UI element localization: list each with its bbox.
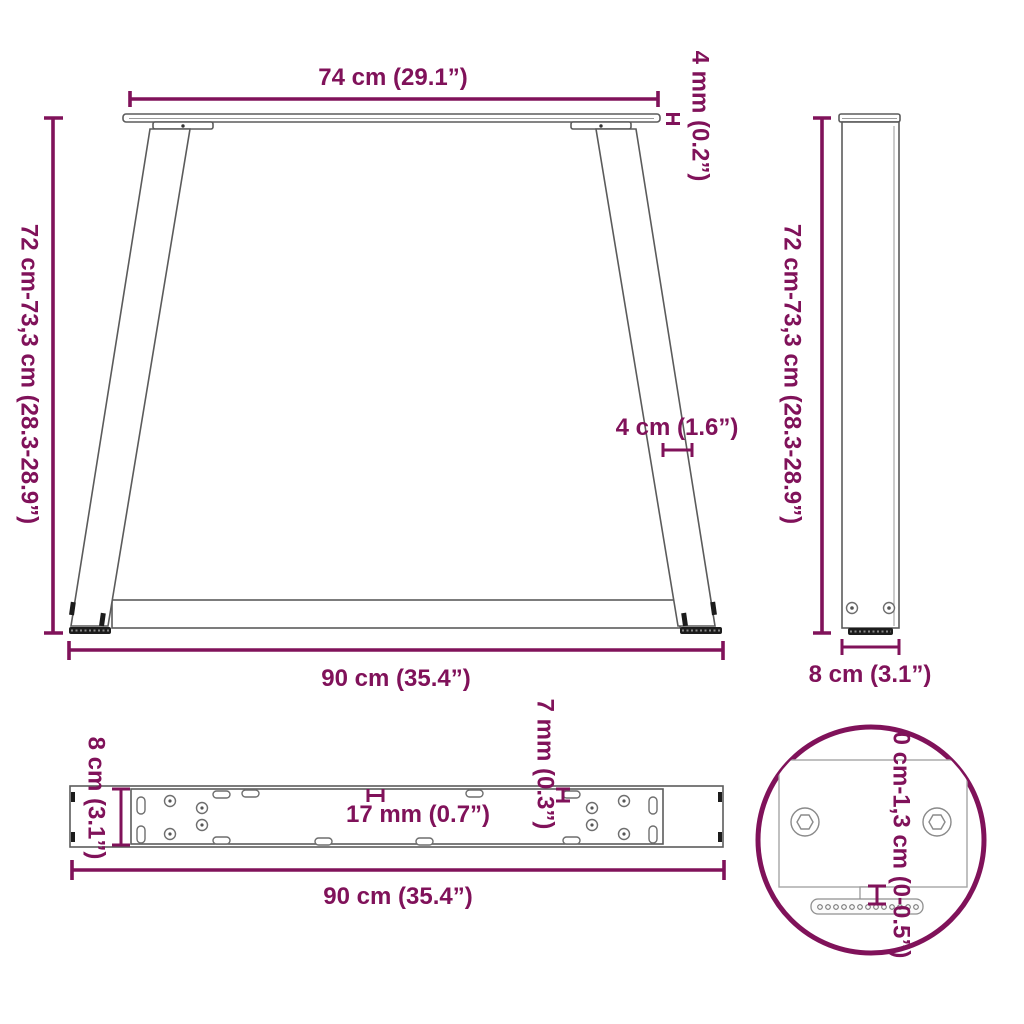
front-bottom-width-label: 90 cm (35.4”)	[321, 665, 470, 692]
front-right-leg	[596, 129, 715, 626]
front-bottom-width-dimension	[69, 641, 723, 660]
side-height-label: 72 cm-73,3 cm (28.3-28.9”)	[779, 224, 806, 524]
side-depth-label: 8 cm (3.1”)	[809, 661, 932, 688]
detail-view: 0 cm-1,3 cm (0-0.5”)	[758, 727, 984, 958]
top-width-dimension	[72, 860, 724, 880]
side-view: 72 cm-73,3 cm (28.3-28.9”) 8 cm (3.1”)	[779, 114, 932, 688]
top-slot-length-label: 17 mm (0.7”)	[346, 801, 490, 828]
detail-adjustment-label: 0 cm-1,3 cm (0-0.5”)	[888, 732, 915, 959]
front-height-dimension	[44, 118, 63, 633]
top-slot-width-label: 7 mm (0.3”)	[532, 699, 559, 830]
top-depth-label: 8 cm (3.1”)	[83, 737, 110, 860]
front-plate-thickness-label: 4 mm (0.2”)	[687, 51, 714, 182]
side-depth-dimension	[842, 639, 899, 655]
dimension-diagram-page: 74 cm (29.1”) 72 cm-73,3 cm (28.3-28.9”)…	[0, 0, 1024, 1024]
side-height-dimension	[813, 118, 831, 633]
front-height-label: 72 cm-73,3 cm (28.3-28.9”)	[16, 224, 43, 524]
front-top-width-label: 74 cm (29.1”)	[318, 64, 467, 91]
top-width-label: 90 cm (35.4”)	[323, 883, 472, 910]
dimension-diagram: 74 cm (29.1”) 72 cm-73,3 cm (28.3-28.9”)…	[0, 0, 1024, 1024]
front-bottom-bar	[112, 600, 680, 628]
front-leg-width-label: 4 cm (1.6”)	[616, 414, 739, 441]
top-view: 8 cm (3.1”) 17 mm (0.7”) 7 mm (0.3”) 90 …	[70, 699, 724, 910]
front-left-leg	[71, 129, 190, 626]
front-top-width-dimension	[130, 91, 658, 107]
front-view: 74 cm (29.1”) 72 cm-73,3 cm (28.3-28.9”)…	[16, 51, 739, 692]
side-leg-body	[842, 122, 899, 628]
front-plate-thickness-marker	[666, 115, 680, 124]
